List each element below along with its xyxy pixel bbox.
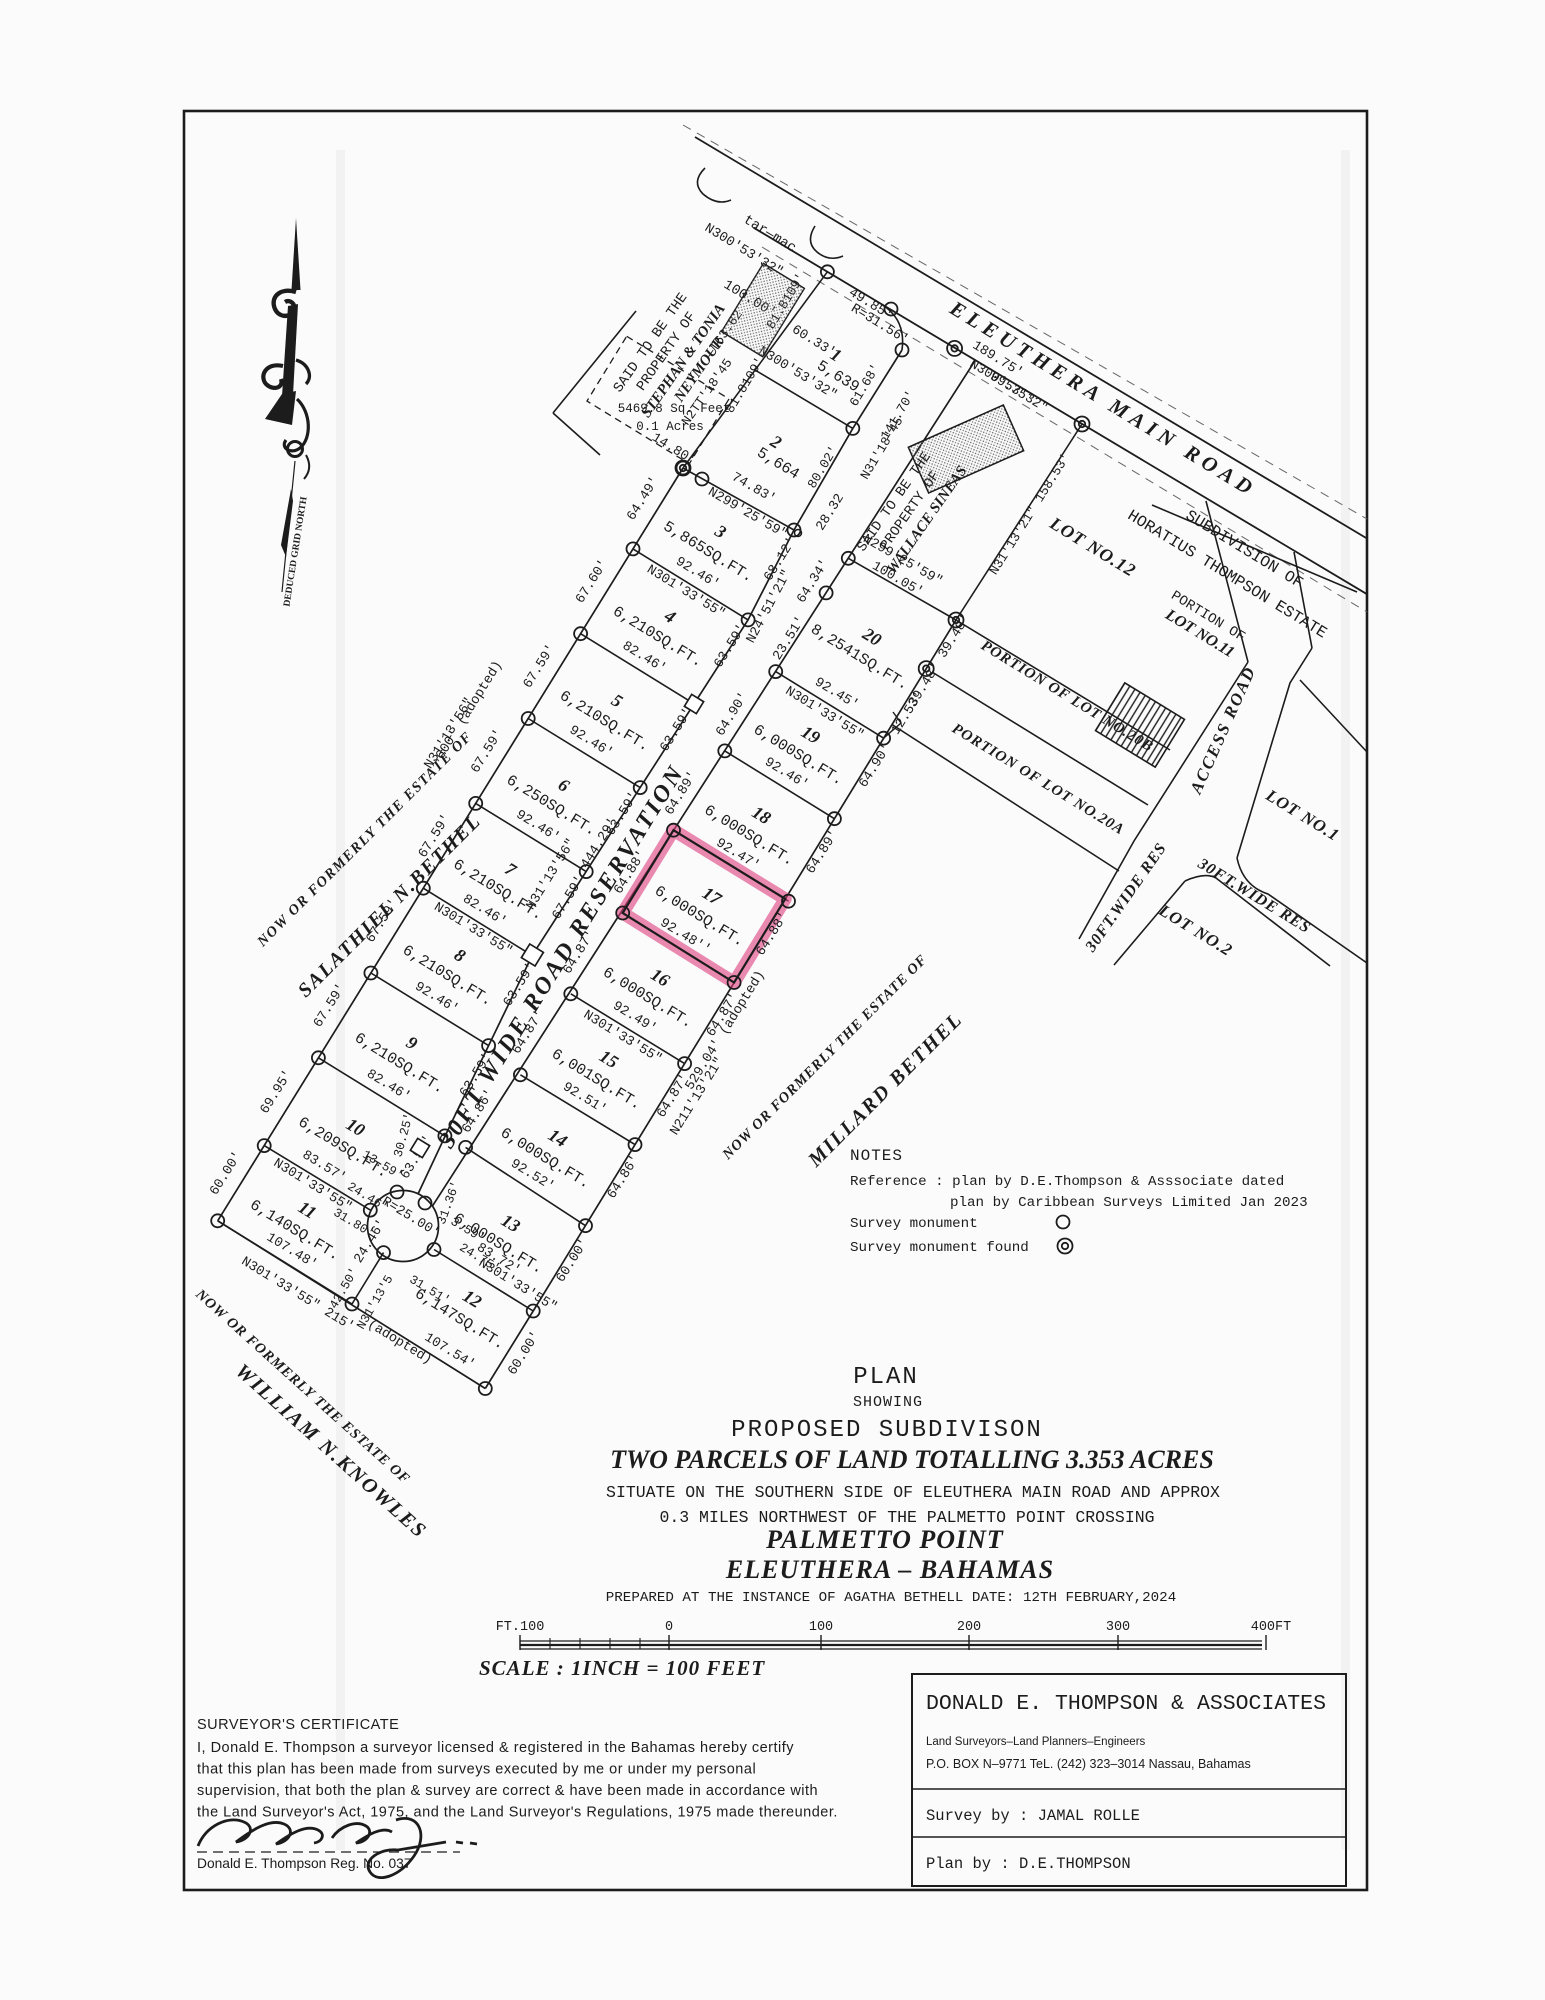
svg-text:400FT: 400FT [1251, 1620, 1292, 1635]
svg-text:Survey monument found: Survey monument found [850, 1240, 1029, 1256]
svg-text:Donald E. Thompson Reg. No. 03: Donald E. Thompson Reg. No. 037 [197, 1856, 412, 1871]
svg-text:100: 100 [809, 1620, 833, 1635]
svg-text:Land Surveyors–Land Planners–E: Land Surveyors–Land Planners–Engineers [926, 1736, 1146, 1748]
svg-text:TWO PARCELS OF LAND TOTALLING: TWO PARCELS OF LAND TOTALLING 3.353 ACRE… [610, 1445, 1214, 1474]
svg-text:Survey monument: Survey monument [850, 1216, 978, 1232]
svg-text:SCALE : 1INCH = 100 FEET: SCALE : 1INCH = 100 FEET [479, 1656, 765, 1680]
svg-text:Plan by : D.E.THOMPSON: Plan by : D.E.THOMPSON [926, 1855, 1131, 1873]
svg-text:Survey by : JAMAL ROLLE: Survey by : JAMAL ROLLE [926, 1807, 1140, 1825]
svg-text:DONALD E. THOMPSON & ASSOCIATE: DONALD E. THOMPSON & ASSOCIATES [926, 1692, 1326, 1716]
svg-text:5469.8 Sq. Feet: 5469.8 Sq. Feet [618, 402, 731, 416]
svg-text:200: 200 [957, 1620, 981, 1635]
svg-text:I, Donald E. Thompson a survey: I, Donald E. Thompson a surveyor license… [197, 1740, 794, 1756]
svg-text:plan by Caribbean Surveys Limi: plan by Caribbean Surveys Limited Jan 20… [950, 1195, 1308, 1211]
svg-text:0: 0 [665, 1620, 673, 1635]
svg-text:PLAN: PLAN [853, 1364, 919, 1391]
svg-text:supervision, that both the pla: supervision, that both the plan & survey… [197, 1783, 818, 1799]
svg-text:SITUATE ON THE SOUTHERN SIDE O: SITUATE ON THE SOUTHERN SIDE OF ELEUTHER… [606, 1483, 1220, 1502]
svg-text:SHOWING: SHOWING [853, 1394, 923, 1411]
svg-text:PALMETTO POINT: PALMETTO POINT [765, 1525, 1004, 1554]
svg-text:300: 300 [1106, 1620, 1130, 1635]
svg-text:NOTES: NOTES [850, 1147, 903, 1165]
svg-text:PREPARED AT THE INSTANCE OF AG: PREPARED AT THE INSTANCE OF AGATHA BETHE… [606, 1590, 1176, 1606]
svg-text:PROPOSED SUBDIVISON: PROPOSED SUBDIVISON [731, 1417, 1043, 1444]
svg-text:SURVEYOR'S CERTIFICATE: SURVEYOR'S CERTIFICATE [197, 1717, 399, 1733]
svg-text:Reference : plan by D.E.Thomps: Reference : plan by D.E.Thompson & Assso… [850, 1174, 1284, 1190]
svg-text:the Land Surveyor's Act, 1975,: the Land Surveyor's Act, 1975, and the L… [197, 1805, 838, 1821]
svg-text:0.1 Acres: 0.1 Acres [636, 420, 704, 434]
svg-text:FT.100: FT.100 [496, 1620, 545, 1635]
svg-text:that this plan has been made f: that this plan has been made from survey… [197, 1762, 756, 1778]
svg-text:ELEUTHERA – BAHAMAS: ELEUTHERA – BAHAMAS [725, 1555, 1054, 1584]
svg-text:P.O. BOX N–9771 TeL. (242) 323: P.O. BOX N–9771 TeL. (242) 323–3014 Nass… [926, 1757, 1251, 1771]
